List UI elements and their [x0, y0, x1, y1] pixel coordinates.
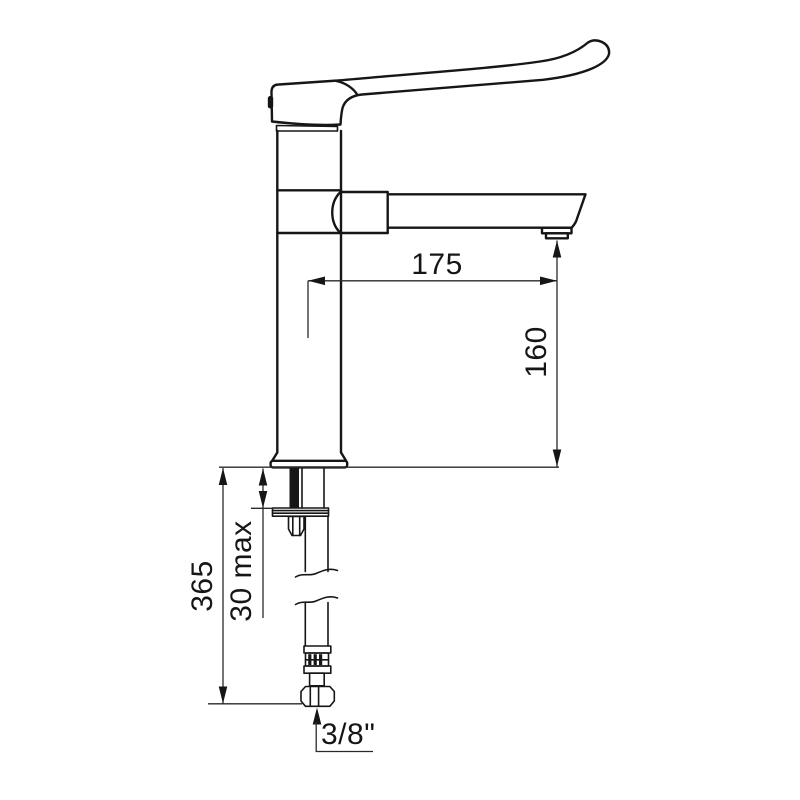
arrowhead-left — [308, 277, 325, 286]
arrowhead-up — [259, 469, 268, 486]
dimension-spout-height: 160 — [520, 241, 561, 467]
faucet-technical-drawing: 175 160 365 30 max 3/8" — [0, 0, 800, 800]
dimension-label-deck-thickness: 30 max — [225, 520, 258, 621]
supply-hose — [296, 516, 338, 646]
threaded-stud — [290, 468, 300, 508]
drawing-canvas: 175 160 365 30 max 3/8" — [0, 0, 800, 800]
mounting-plate — [273, 508, 329, 516]
lever-handle — [268, 40, 609, 125]
arrowhead-up — [553, 241, 562, 258]
dimension-deck-thickness: 30 max — [225, 469, 273, 622]
arrowhead-down — [553, 450, 562, 467]
dimension-label-below-deck: 365 — [186, 560, 219, 612]
swivel-spout — [332, 192, 585, 238]
fixing-nut — [289, 517, 305, 536]
arrowhead-down — [259, 491, 268, 508]
arrowhead-up — [313, 708, 322, 725]
dimension-label-spout-reach: 175 — [411, 248, 463, 281]
faucet-body — [277, 126, 388, 453]
arrowhead-right — [540, 277, 557, 286]
hose-end-fitting — [304, 646, 331, 686]
dimension-connection-size: 3/8" — [313, 708, 376, 752]
faucet-base — [271, 453, 348, 468]
under-deck-assembly — [273, 468, 338, 706]
connection-nut — [301, 687, 334, 707]
dimension-label-connection-size: 3/8" — [321, 718, 375, 751]
arrowhead-down — [219, 687, 228, 704]
dimension-spout-reach: 175 — [308, 248, 557, 338]
dimension-label-spout-height: 160 — [520, 326, 553, 378]
arrowhead-up — [219, 468, 228, 485]
handle-button — [268, 96, 273, 109]
